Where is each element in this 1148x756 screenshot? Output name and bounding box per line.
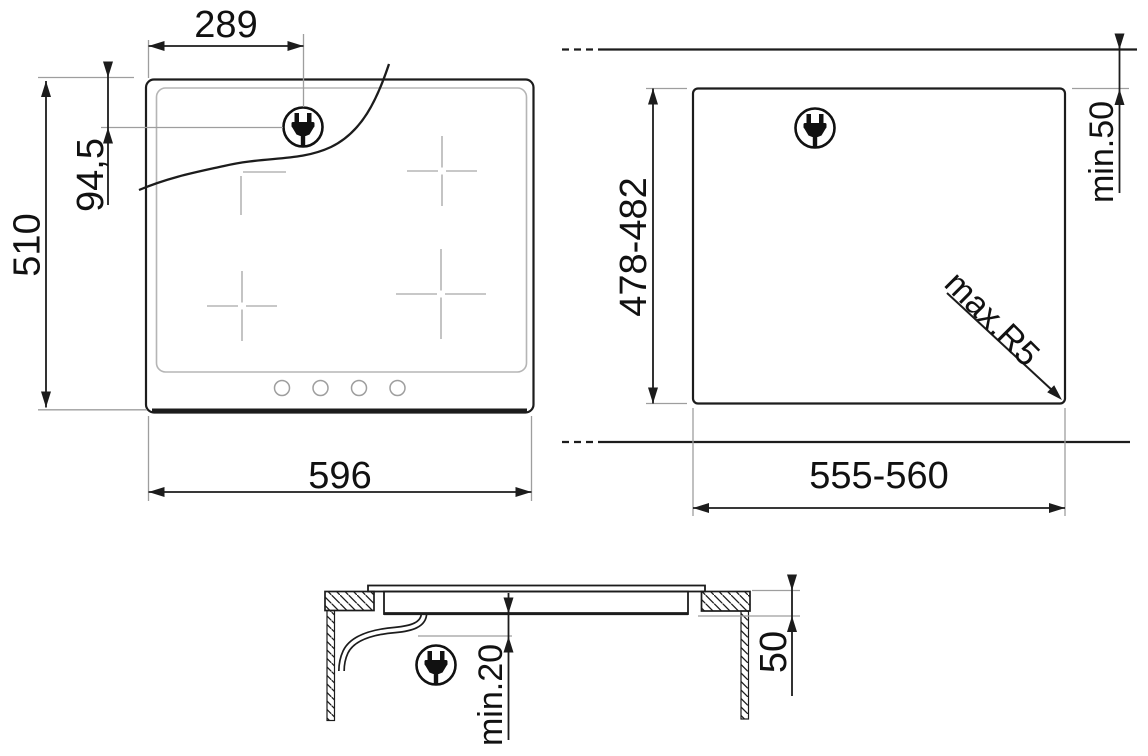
arrowhead-right	[288, 41, 304, 51]
arrowhead-right	[1049, 503, 1065, 513]
worktop-section-right	[702, 592, 751, 612]
arrowhead-up	[787, 616, 797, 632]
burner-cross-bottom-right	[396, 249, 486, 339]
section-view: min.20 50	[325, 575, 800, 747]
burner-cross-top-left	[241, 172, 286, 215]
burner-cross-bottom-left	[207, 271, 277, 341]
diagram-canvas: 289 94,5 510 596	[0, 0, 1148, 756]
knob-circle	[352, 381, 367, 396]
dimension-cutout-height: 478-482	[613, 89, 687, 404]
glass-top-section	[368, 586, 705, 592]
dimension-hob-height: 510	[7, 81, 148, 410]
arrowhead-left	[693, 503, 709, 513]
knob-circle	[390, 381, 405, 396]
dimension-cutout-width: 555-560	[693, 408, 1065, 516]
dimension-plug-offset-x: 289	[149, 4, 304, 107]
burner-cross-top-right	[407, 136, 477, 206]
power-plug-icon	[284, 108, 323, 147]
arrowhead-up	[41, 81, 51, 97]
dimension-rear-clearance: min.50	[1072, 34, 1129, 204]
power-plug-icon	[417, 646, 456, 685]
power-plug-icon	[796, 109, 835, 148]
arrowhead-down	[648, 388, 658, 404]
arrowhead-left	[149, 487, 165, 497]
dim-label-maxR5: max.R5	[937, 264, 1047, 374]
cable-inner	[342, 613, 425, 671]
dim-label-min50: min.50	[1083, 101, 1121, 203]
power-cable	[342, 613, 425, 671]
dim-label-555-560: 555-560	[809, 455, 948, 497]
dim-label-50: 50	[753, 631, 795, 673]
arrowhead-up	[648, 89, 658, 105]
arrowhead-down	[1115, 34, 1125, 50]
corner-radius-callout: max.R5	[937, 264, 1062, 400]
hob-outline	[146, 80, 534, 413]
arrowhead-down	[103, 62, 113, 78]
control-knobs	[275, 381, 406, 396]
arrowhead-down	[41, 392, 51, 408]
glass-outline	[157, 88, 527, 372]
dim-label-510: 510	[7, 213, 49, 276]
cabinet-wall-right	[741, 611, 749, 719]
front-view: 289 94,5 510 596	[7, 4, 534, 501]
burner-crosses	[207, 136, 486, 341]
arrowhead-down	[504, 598, 514, 614]
installation-diagram: 289 94,5 510 596	[0, 0, 1148, 756]
hob-body-section	[384, 592, 688, 615]
dim-label-94-5: 94,5	[70, 138, 112, 212]
dim-label-478-482: 478-482	[613, 177, 655, 316]
dim-label-min20: min.20	[472, 644, 510, 746]
worktop-section-left	[325, 592, 374, 611]
arrowhead-down	[787, 575, 797, 591]
dim-label-596: 596	[308, 455, 371, 497]
cabinet-wall-left	[327, 611, 335, 721]
dimension-plug-offset-y: 94,5	[38, 62, 283, 212]
dim-label-289: 289	[194, 4, 257, 46]
arrowhead-left	[149, 41, 165, 51]
knob-circle	[275, 381, 290, 396]
knob-circle	[313, 381, 328, 396]
dimension-hob-width: 596	[149, 416, 532, 501]
cutout-view: 478-482 min.50 555-560 max.R5	[562, 34, 1137, 517]
arrowhead-right	[516, 487, 532, 497]
